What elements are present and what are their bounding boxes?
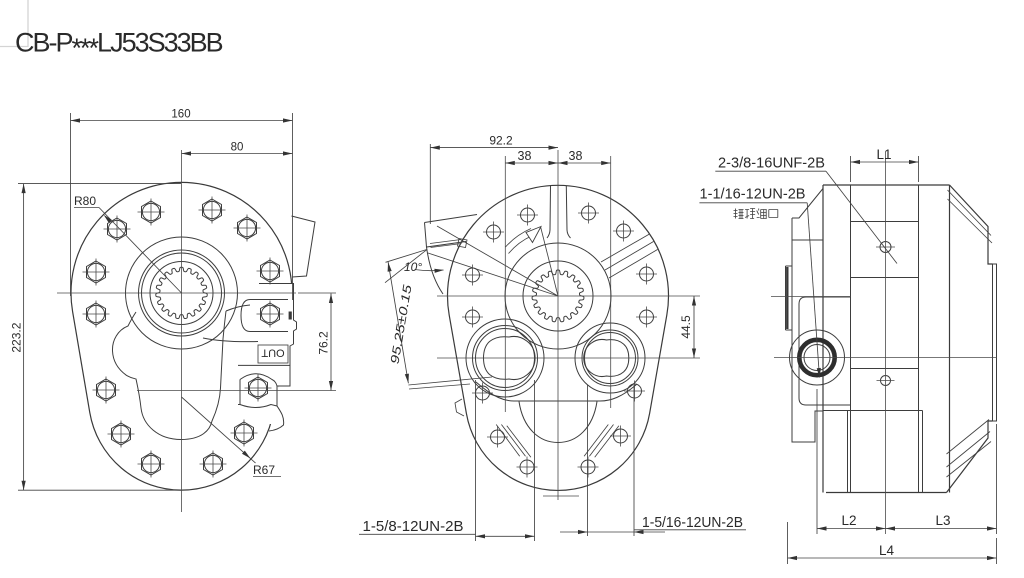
svg-text:L2: L2 — [841, 513, 856, 528]
svg-text:223.2: 223.2 — [10, 322, 24, 352]
svg-text:R67: R67 — [253, 463, 275, 477]
svg-text:80: 80 — [231, 142, 244, 154]
svg-text:92.2: 92.2 — [489, 134, 513, 148]
svg-text:160: 160 — [171, 109, 190, 121]
svg-text:10°: 10° — [404, 260, 422, 274]
svg-text:38: 38 — [569, 149, 583, 163]
svg-text:38: 38 — [518, 149, 532, 163]
svg-text:76.2: 76.2 — [317, 331, 331, 355]
svg-text:L3: L3 — [935, 513, 950, 528]
svg-text:2-3/8-16UNF-2B: 2-3/8-16UNF-2B — [718, 156, 825, 172]
svg-text:OUT: OUT — [261, 347, 285, 359]
svg-text:L1: L1 — [876, 147, 891, 162]
svg-text:1-5/16-12UN-2B: 1-5/16-12UN-2B — [642, 515, 743, 531]
svg-text:1-1/16-12UN-2B: 1-1/16-12UN-2B — [700, 187, 806, 203]
svg-text:1-5/8-12UN-2B: 1-5/8-12UN-2B — [363, 519, 464, 535]
svg-text:L4: L4 — [879, 543, 895, 558]
svg-text:44.5: 44.5 — [679, 315, 693, 339]
svg-text:R80: R80 — [74, 194, 96, 208]
